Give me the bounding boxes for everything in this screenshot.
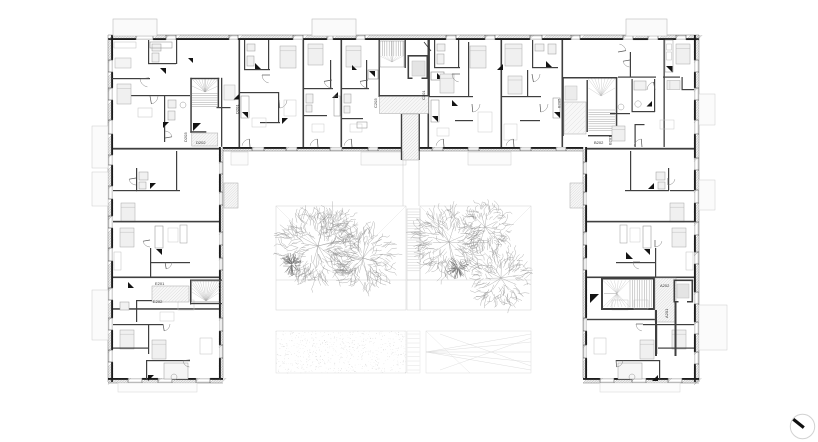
- svg-text:D202: D202: [196, 140, 206, 145]
- svg-text:B202: B202: [594, 140, 604, 145]
- svg-text:A202: A202: [660, 283, 670, 288]
- svg-text:D203: D203: [183, 132, 188, 142]
- svg-text:C201: C201: [421, 90, 426, 100]
- svg-text:E201: E201: [155, 281, 165, 286]
- svg-text:D201: D201: [235, 104, 240, 114]
- svg-text:E202: E202: [153, 299, 163, 304]
- svg-text:A201: A201: [664, 308, 669, 318]
- svg-text:B205: B205: [557, 98, 562, 108]
- svg-text:C203: C203: [373, 98, 378, 108]
